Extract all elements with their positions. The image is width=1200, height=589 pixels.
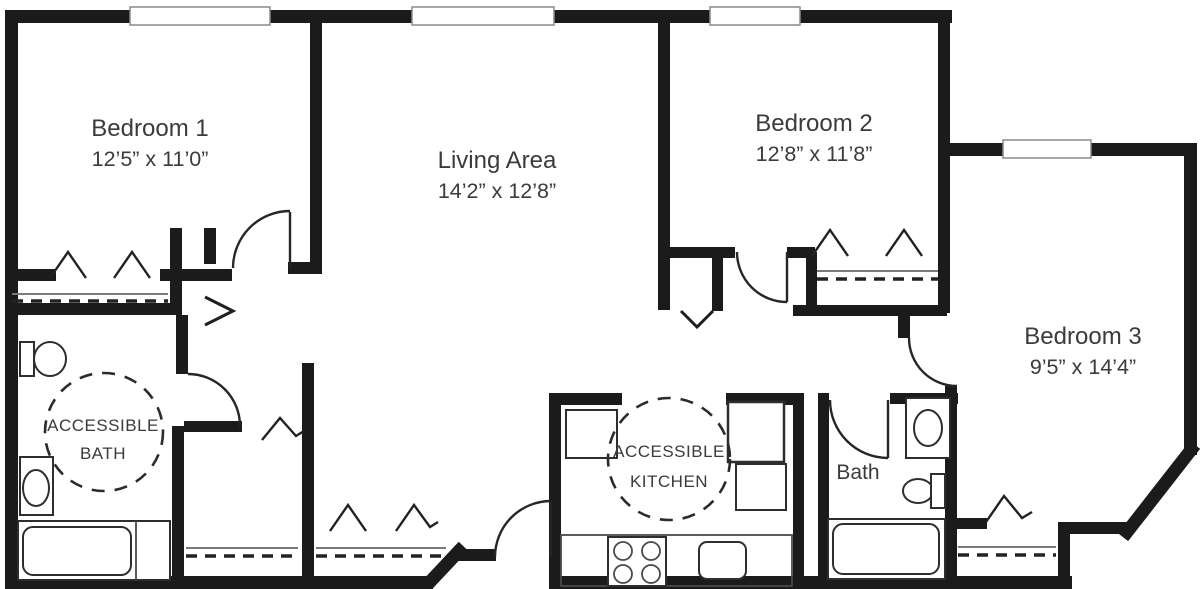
bathtub-icon <box>833 524 939 574</box>
accessible-kitchen-label-line1: ACCESSIBLE <box>613 442 725 461</box>
wall-small-closet-right <box>712 247 723 311</box>
kitchen-fixtures <box>561 398 792 586</box>
counter-section-icon <box>736 464 786 510</box>
window-bedroom3 <box>1003 140 1091 158</box>
toilet-tank-icon <box>20 342 34 376</box>
door-bath <box>830 400 888 458</box>
toilet-bowl-icon <box>903 479 933 503</box>
door-arc <box>830 400 888 458</box>
wall-living-bedroom2-divider <box>658 10 670 310</box>
hanger-icon <box>986 496 1032 522</box>
living-label: Living Area <box>438 147 557 174</box>
bedroom3-label: Bedroom 3 <box>1024 323 1141 350</box>
door-small-closet <box>681 311 713 327</box>
hanger-icon <box>262 418 304 440</box>
swing-door-icon <box>205 297 233 325</box>
wall-bedroom3-right <box>1184 143 1197 455</box>
floor-plan: Bedroom 1 12’5” x 11’0” Living Area 14’2… <box>0 0 1200 589</box>
bedroom1-label: Bedroom 1 <box>91 115 208 142</box>
counter-section-icon <box>566 410 617 458</box>
wall-bedroom3-closet-right <box>1058 522 1070 589</box>
wall-bedroom1-door-jamb <box>288 262 322 274</box>
wall-bedroom2-bottom-left <box>666 247 735 258</box>
wall-bedroom3-door-stub <box>898 310 910 338</box>
accessible-bath-label-line1: ACCESSIBLE <box>47 416 159 435</box>
wall-bathsuite-lower <box>172 426 184 589</box>
wall-bathsuite-upper <box>176 315 188 374</box>
wall-bedroom2-closet-bottom <box>793 305 947 316</box>
hanger-icon <box>396 505 438 531</box>
accessible-kitchen-label-line2: KITCHEN <box>630 472 708 491</box>
door-accessible-bath <box>188 374 240 426</box>
wall-bedroom1-bottom-left <box>5 269 56 281</box>
window-living <box>412 7 554 25</box>
wall-bath-top <box>5 303 182 315</box>
wall-bedroom2-closet-left <box>806 252 817 313</box>
living-dims: 14’2” x 12’8” <box>438 179 556 203</box>
hanger-icon <box>812 230 848 256</box>
door-vestibule-swing <box>205 297 233 325</box>
toilet-tank-icon <box>931 474 945 508</box>
bedroom1-dims: 12’5” x 11’0” <box>92 147 209 171</box>
wall-kitchen-top-left <box>549 393 622 405</box>
bedroom3-dims: 9’5” x 14’4” <box>1030 355 1136 379</box>
closet-bath-dressing <box>186 418 304 556</box>
wall-bedroom3-closet-stub <box>957 518 987 529</box>
wall-kitchen-left <box>549 393 561 589</box>
bedroom2-label: Bedroom 2 <box>755 110 872 137</box>
wall-entry-left <box>452 549 496 561</box>
hanger-icon <box>886 230 922 256</box>
window-bedroom1 <box>130 7 270 25</box>
accessible-bath-label-line2: BATH <box>80 444 126 463</box>
door-arc <box>909 338 957 386</box>
hanger-icon <box>330 505 366 531</box>
door-bedroom1 <box>233 211 290 268</box>
door-entry <box>495 501 551 557</box>
bathtub-icon <box>23 527 131 575</box>
closet-bedroom2 <box>812 230 938 279</box>
closet-hall <box>316 505 446 556</box>
wall-bathsuite-door-wing <box>184 421 242 432</box>
wall-kitchen-right <box>793 393 804 589</box>
door-bedroom2 <box>737 252 787 302</box>
door-arc <box>495 501 551 557</box>
wall-hall-closet <box>302 363 314 589</box>
toilet-bowl-icon <box>34 342 66 376</box>
sink-basin-icon <box>914 410 942 446</box>
wall-vestibule-left <box>170 228 182 315</box>
kitchen-sink-icon <box>699 542 746 579</box>
sink-basin-icon <box>23 470 49 506</box>
door-arc <box>188 374 240 426</box>
wall-bedroom1-right <box>310 10 322 271</box>
door-bedroom3 <box>909 338 957 386</box>
wall-vestibule-right <box>204 228 216 264</box>
wall-bedroom2-right <box>938 10 950 313</box>
bedroom2-dims: 12’8” x 11’8” <box>756 142 873 166</box>
door-arc <box>233 211 290 268</box>
floor-plan-svg: Bedroom 1 12’5” x 11’0” Living Area 14’2… <box>0 0 1200 589</box>
wall-bedroom3-diagonal <box>1127 450 1191 532</box>
door-arc <box>737 252 787 302</box>
bifold-door-icon <box>681 311 713 327</box>
bath-label: Bath <box>836 461 879 484</box>
refrigerator-icon <box>728 402 784 462</box>
hanger-icon <box>114 252 150 278</box>
window-bedroom2 <box>710 7 800 25</box>
